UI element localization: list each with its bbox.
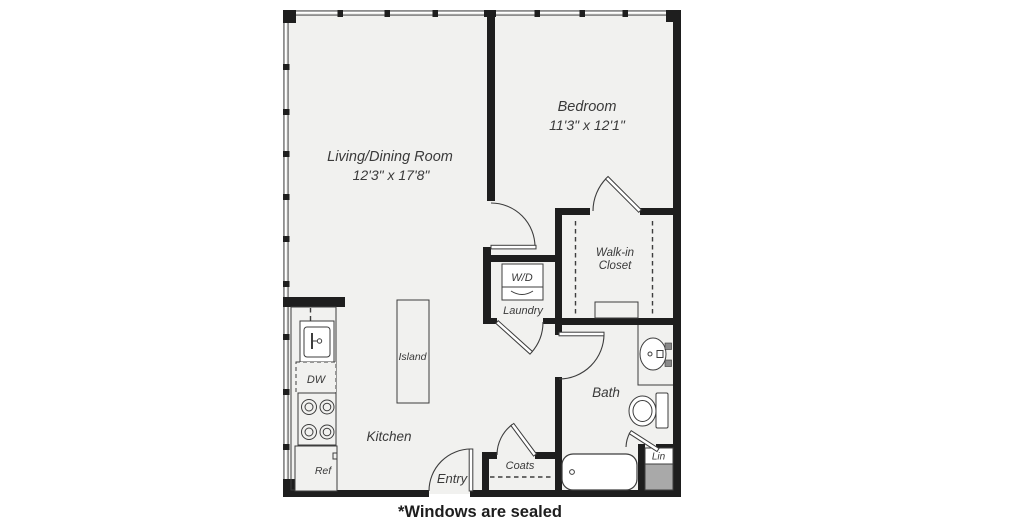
label-walk-in-closet-2: Closet	[599, 260, 632, 272]
closet-dresser	[595, 302, 638, 318]
label-bath: Bath	[592, 385, 620, 400]
label-living-dining-dims: 12'3" x 17'8"	[353, 167, 431, 183]
label-walk-in-closet-1: Walk-in	[596, 247, 634, 259]
label-linen: Lin	[652, 452, 666, 463]
kitchen-sink	[300, 321, 334, 362]
bathroom-sink	[640, 338, 666, 370]
label-living-dining: Living/Dining Room	[327, 149, 453, 165]
label-dishwasher: DW	[307, 374, 327, 386]
label-island: Island	[398, 351, 427, 363]
label-refrigerator: Ref	[315, 465, 332, 477]
toilet	[629, 393, 668, 428]
label-bedroom: Bedroom	[558, 99, 617, 115]
label-bedroom-dims: 11'3" x 12'1"	[549, 117, 626, 133]
floorplan-svg: Living/Dining Room 12'3" x 17'8" Bedroom…	[0, 0, 1024, 525]
label-entry: Entry	[437, 471, 469, 486]
footnote: *Windows are sealed	[398, 503, 562, 521]
range	[298, 393, 336, 445]
label-coats: Coats	[506, 460, 535, 472]
label-washer-dryer: W/D	[511, 272, 532, 284]
bathtub	[562, 454, 637, 490]
floorplan: Living/Dining Room 12'3" x 17'8" Bedroom…	[0, 0, 1024, 525]
utility-shaft	[645, 464, 673, 490]
label-kitchen: Kitchen	[366, 429, 411, 444]
label-laundry: Laundry	[503, 305, 544, 317]
